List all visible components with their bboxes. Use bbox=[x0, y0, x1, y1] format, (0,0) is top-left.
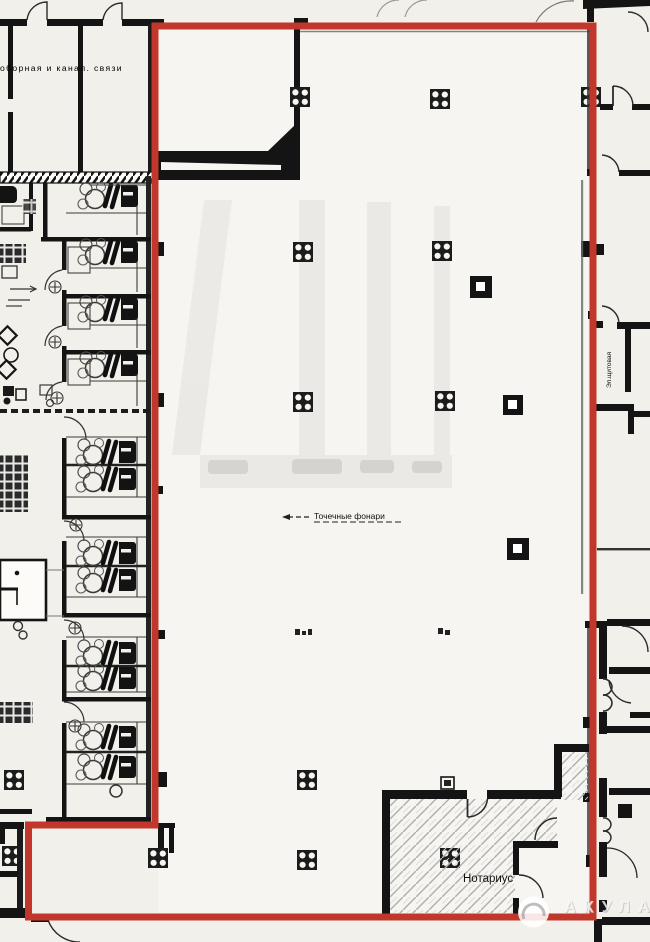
svg-text:оборная и канал. связи: оборная и канал. связи bbox=[0, 63, 123, 73]
svg-text:АКУЛА: АКУЛА bbox=[564, 898, 650, 916]
svg-text:Эл.щитовая: Эл.щитовая bbox=[606, 351, 613, 388]
svg-text:Нотариус: Нотариус bbox=[463, 873, 513, 885]
svg-text:Точечные фонари: Точечные фонари bbox=[314, 511, 385, 521]
